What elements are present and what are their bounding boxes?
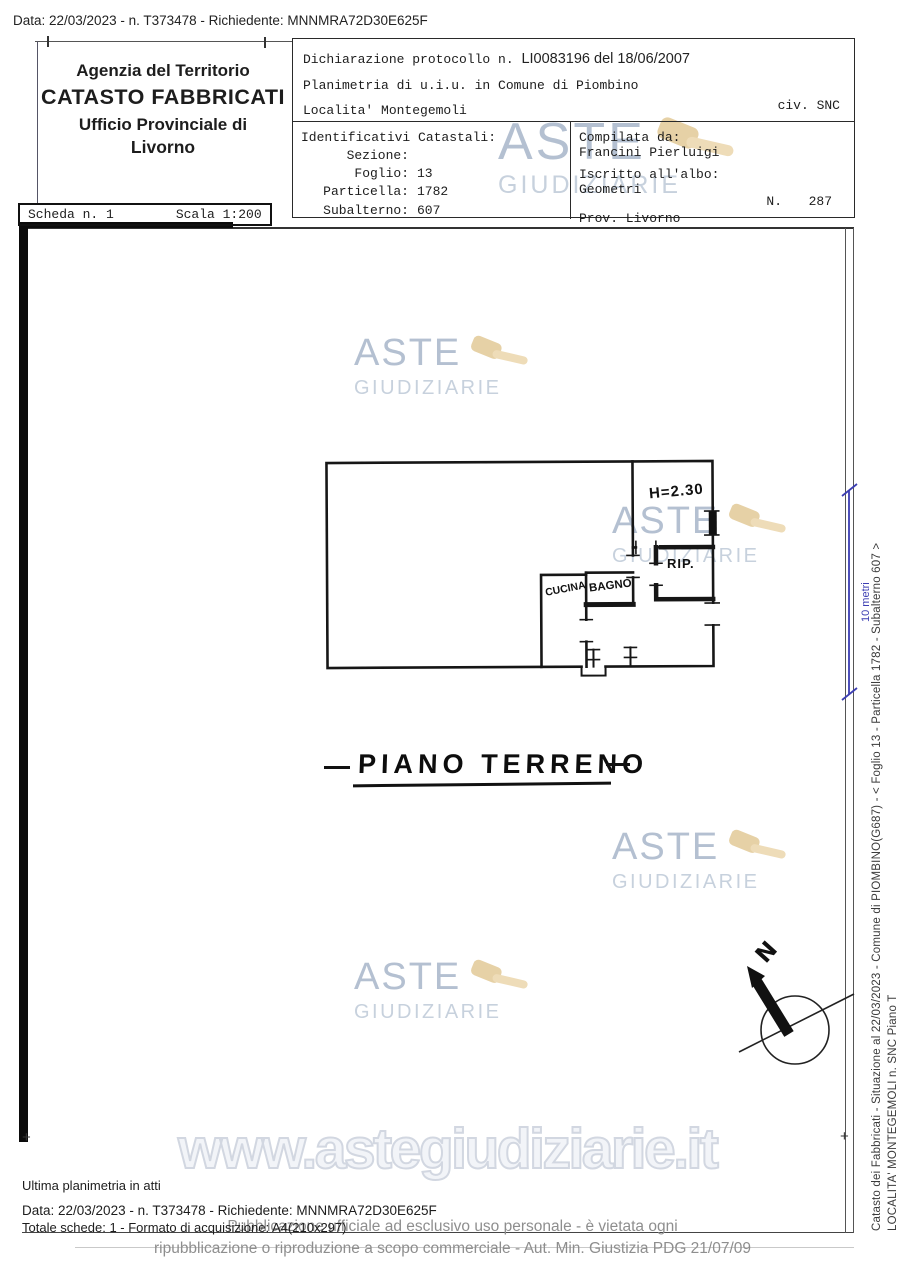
registration-cross: + [840, 1132, 849, 1142]
aste-watermark-text: ASTE [354, 958, 461, 996]
ident-row-particella: Particella:1782 [301, 183, 570, 201]
ident-label: Foglio: [301, 165, 409, 183]
aste-watermark: ASTE GIUDIZIARIE [354, 958, 531, 1022]
ident-value: 1782 [417, 184, 448, 199]
albo-label: Iscritto all'albo: [579, 167, 854, 182]
giudiziarie-watermark-text: GIUDIZIARIE [354, 378, 531, 398]
aste-watermark-text: ASTE [612, 828, 719, 866]
localita-line: Localita' Montegemoli [303, 98, 842, 124]
declaration-box: Dichiarazione protocollo n. LI0083196 de… [292, 38, 855, 218]
agency-line1: Agenzia del Territorio [35, 60, 291, 81]
ident-value: 13 [417, 166, 433, 181]
registration-cross: + [22, 1133, 31, 1143]
gavel-icon [725, 500, 789, 544]
giudiziarie-watermark-text: GIUDIZIARIE [354, 1002, 531, 1022]
planimetria-line: Planimetria di u.i.u. in Comune di Piomb… [303, 73, 842, 99]
compilata-box: Compilata da: Francini Pierluigi Iscritt… [571, 122, 854, 219]
aste-watermark: ASTE GIUDIZIARIE [612, 828, 789, 892]
registration-tick [264, 37, 266, 48]
floor-caption: PIANO TERRENO [357, 749, 648, 780]
n-label: N. [766, 194, 782, 209]
declaration-bottom: Identificativi Catastali: Sezione: Fogli… [293, 121, 854, 219]
aste-watermark-text: ASTE [354, 334, 461, 372]
ident-row-sezione: Sezione: [301, 147, 570, 165]
gavel-icon [725, 826, 789, 870]
gavel-icon [467, 332, 531, 376]
n-value: 287 [809, 194, 832, 209]
compilata-name: Francini Pierluigi [579, 145, 854, 160]
registration-tick [47, 36, 49, 47]
scheda-number: Scheda n. 1 [28, 207, 114, 222]
footer-data-line: Data: 22/03/2023 - n. T373478 - Richiede… [22, 1203, 437, 1218]
declaration-top: Dichiarazione protocollo n. LI0083196 de… [293, 39, 854, 121]
civ-value: civ. SNC [778, 98, 840, 113]
gavel-icon [467, 956, 531, 1000]
footer-ultima: Ultima planimetria in atti [22, 1178, 161, 1193]
scala-value: Scala 1:200 [176, 207, 262, 222]
margin-vertical-line1: Catasto dei Fabbricati - Situazione al 2… [871, 543, 883, 1231]
north-letter: N [751, 937, 783, 969]
sheet-frame-right-outer [853, 228, 854, 1233]
giudiziarie-watermark-text: GIUDIZIARIE [612, 872, 789, 892]
protocol-value: LI0083196 del 18/06/2007 [521, 51, 690, 67]
ident-label: Particella: [301, 183, 409, 201]
compilata-label: Compilata da: [579, 130, 854, 145]
header-top-line [35, 41, 292, 42]
aste-watermark: ASTE GIUDIZIARIE [354, 334, 531, 398]
caption-dash [606, 763, 630, 766]
ident-label: Sezione: [301, 147, 409, 165]
top-request-line: Data: 22/03/2023 - n. T373478 - Richiede… [13, 13, 428, 28]
footer-disclaimer-line2: ripubblicazione o riproduzione a scopo c… [0, 1240, 905, 1258]
room-label-rip: RIP. [667, 556, 695, 571]
ident-value: 607 [417, 203, 440, 218]
prov-value: Prov. Livorno [579, 211, 854, 226]
protocol-line: Dichiarazione protocollo n. LI0083196 de… [303, 47, 842, 73]
caption-underline [353, 782, 611, 787]
agency-block: Agenzia del Territorio CATASTO FABBRICAT… [35, 54, 291, 159]
identificativi-title: Identificativi Catastali: [301, 130, 570, 145]
url-watermark: www.astegiudiziarie.it [178, 1116, 716, 1182]
caption-dash [324, 766, 350, 769]
sheet-frame-right-inner [845, 228, 846, 1233]
ident-label: Subalterno: [301, 202, 409, 220]
footer-totale: Totale schede: 1 - Formato di acquisizio… [22, 1220, 346, 1235]
sheet-frame-left-bar [19, 222, 28, 1142]
ident-row-subalterno: Subalterno:607 [301, 202, 570, 220]
agency-line2: CATASTO FABBRICATI [35, 84, 291, 111]
north-arrow-icon: N [733, 936, 861, 1074]
agency-line4: Livorno [35, 137, 291, 159]
protocol-label: Dichiarazione protocollo n. [303, 52, 514, 67]
scheda-box: Scheda n. 1 Scala 1:200 [18, 203, 272, 226]
agency-line3: Ufficio Provinciale di [35, 114, 291, 135]
margin-vertical-line2: LOCALITA' MONTEGEMOLI n. SNC Piano T [887, 995, 899, 1231]
identificativi-box: Identificativi Catastali: Sezione: Fogli… [293, 122, 571, 219]
ident-row-foglio: Foglio:13 [301, 165, 570, 183]
